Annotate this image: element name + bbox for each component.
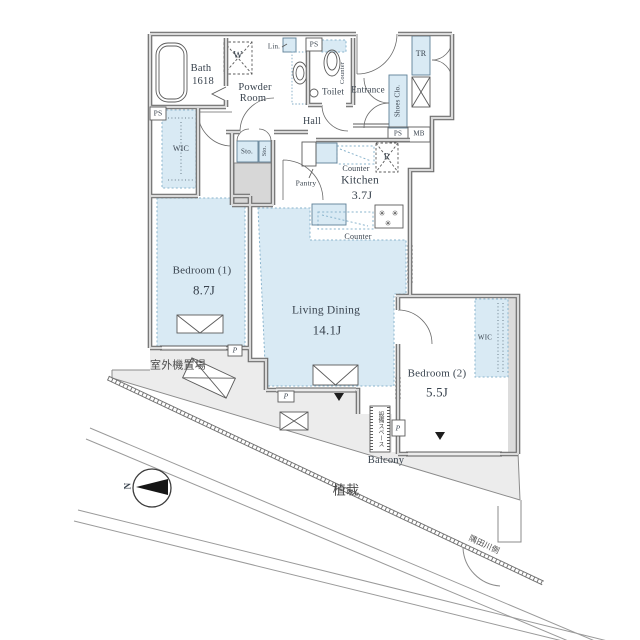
label-planting: 植栽	[333, 484, 359, 497]
north-arrow	[133, 469, 171, 507]
label-wic-right: WIC	[478, 335, 492, 342]
label-powder-2: Room	[240, 94, 266, 105]
label-bath-size: 1618	[192, 77, 214, 88]
label-pantry: Pantry	[296, 179, 317, 187]
label-entrance: Entrance	[351, 86, 385, 95]
balcony-corner-wall	[498, 500, 521, 542]
hatch-box-balcony	[280, 412, 308, 430]
stove-burners: ✳ ✳ ✳	[379, 209, 399, 228]
svg-text:✳: ✳	[379, 209, 386, 218]
wash-basin	[292, 52, 308, 104]
label-powder-1: Powder	[238, 83, 271, 94]
label-kitchen-area: 3.7J	[352, 189, 372, 201]
label-equipment-space: 設備スペース	[377, 411, 383, 447]
access-triangle-bedroom2	[435, 432, 445, 440]
label-counter-lower: Counter	[344, 233, 371, 241]
bath-folding-door	[212, 87, 226, 101]
svg-text:✳: ✳	[392, 209, 399, 218]
label-kitchen: Kitchen	[341, 175, 379, 187]
entrance-step	[353, 124, 389, 127]
trunk-door-upper	[432, 40, 452, 60]
label-ps-left: PS	[154, 109, 163, 117]
label-refrigerator: R	[384, 153, 390, 162]
floor-plan-drawing: ✳ ✳ ✳	[0, 0, 640, 640]
storage-doors	[237, 129, 271, 141]
label-trunk-room: TR	[416, 50, 427, 58]
label-outdoor-unit: 室外機置場	[150, 361, 206, 372]
pantry-cabinet	[302, 142, 316, 166]
kitchen-counter-block	[316, 143, 337, 163]
room-fill-living-dining	[258, 208, 406, 386]
label-living-area: 14.1J	[313, 324, 342, 337]
label-storage-h: Sto.	[241, 149, 253, 156]
floor-plan-page: ✳ ✳ ✳ Bath 1618 W Powder Room Lin. PS Co…	[0, 0, 640, 640]
label-linen: Lin.	[268, 44, 280, 51]
label-pipe-3: P	[396, 424, 401, 432]
bedroom2-door	[398, 310, 432, 344]
toilet-door	[322, 105, 348, 131]
window-symbol-bedroom1	[177, 315, 223, 333]
label-meter-box: MB	[413, 131, 424, 138]
kitchen-counter-dashed	[337, 146, 374, 164]
entrance-door	[357, 34, 397, 74]
bedroom1-door	[198, 112, 232, 146]
label-washer: W	[233, 51, 243, 61]
label-wic-left: WIC	[173, 145, 189, 153]
label-toilet: Toilet	[322, 88, 344, 97]
label-pipe-2: P	[284, 392, 289, 400]
label-living-dining: Living Dining	[292, 305, 360, 317]
label-bedroom1: Bedroom (1)	[173, 266, 232, 277]
bathtub	[156, 43, 187, 102]
label-hall: Hall	[303, 117, 321, 127]
duct-shaft	[412, 77, 430, 107]
label-north: N	[124, 483, 133, 490]
void-space	[234, 163, 273, 205]
label-ps-right: PS	[394, 131, 402, 138]
label-bedroom2-area: 5.5J	[426, 386, 448, 399]
trunk-door-lower	[432, 60, 452, 80]
label-balcony: Balcony	[368, 456, 404, 467]
label-counter-toilet: Counter	[340, 62, 347, 84]
label-shoes-closet: Shoes Clo.	[395, 85, 402, 117]
label-bedroom1-area: 8.7J	[193, 284, 215, 297]
label-counter-upper: Counter	[342, 165, 369, 173]
label-storage-v: Sto.	[262, 146, 268, 156]
window-symbol-living	[313, 365, 358, 385]
label-pipe-1: P	[233, 346, 238, 354]
svg-text:✳: ✳	[385, 219, 392, 228]
label-ps-top: PS	[310, 40, 319, 48]
label-bedroom2: Bedroom (2)	[408, 369, 467, 380]
label-bath: Bath	[191, 64, 212, 75]
kitchen-island-block	[312, 204, 346, 225]
